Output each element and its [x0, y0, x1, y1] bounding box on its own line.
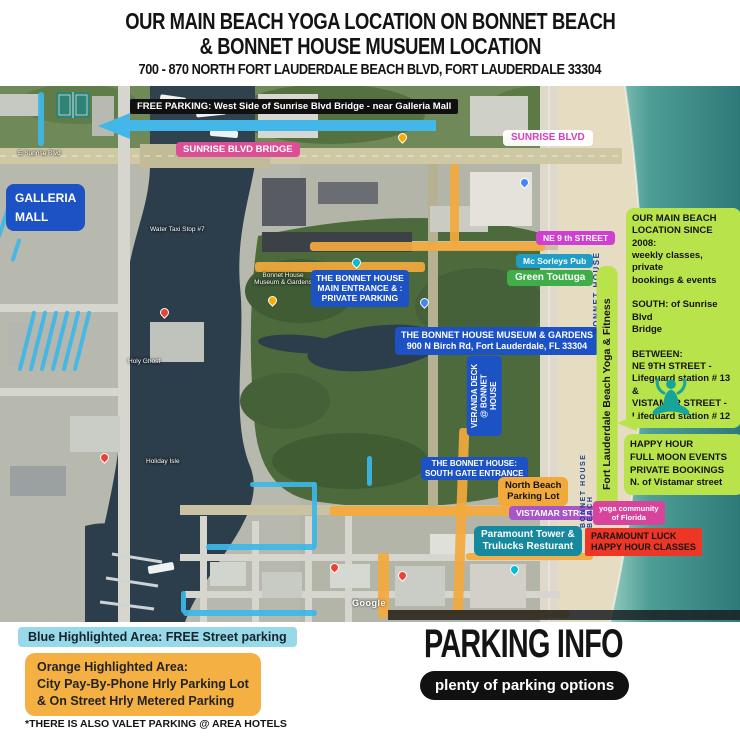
label-sunrise-blvd: SUNRISE BLVD: [503, 130, 593, 146]
blue-highlight-segment: [206, 544, 316, 550]
satellite-map: Water Taxi Stop #7 Holy Ghost Holiday Is…: [0, 86, 740, 622]
blue-highlight-segment: [183, 610, 317, 616]
page-title-line1: OUR MAIN BEACH YOGA LOCATION ON BONNET B…: [0, 8, 740, 35]
label-paramount-luck: PARAMOUNT LUCK HAPPY HOUR CLASSES: [585, 528, 702, 556]
page-title-line2: & BONNET HOUSE MUSUEM LOCATION: [0, 33, 740, 60]
label-galleria-mall: GALLERIA MALL: [6, 184, 85, 231]
label-veranda-deck: VERANDA DECK @ BONNET HOUSE: [467, 356, 502, 436]
label-bonnet-main-entrance: THE BONNET HOUSE MAIN ENTRANCE & : PRIVA…: [311, 270, 409, 307]
label-yoga-community: yoga community of Florida: [593, 501, 665, 525]
green-arrow-icon: [617, 414, 735, 432]
label-sunrise-blvd-bridge: SUNRISE BLVD BRIDGE: [176, 142, 300, 157]
label-mc-sorleys-pub: Mc Sorleys Pub: [516, 254, 593, 268]
label-yoga-strip: Fort Lauderdale Beach Yoga & Fitness: [597, 266, 618, 522]
blue-highlight-segment: [38, 92, 44, 146]
valet-parking-footnote: *THERE IS ALSO VALET PARKING @ AREA HOTE…: [25, 718, 287, 730]
parking-options-pill: plenty of parking options: [420, 671, 629, 700]
place-label-water-taxi: Water Taxi Stop #7: [150, 226, 205, 233]
place-label-bonnet-house-small: Bonnet House Museum & Gardens: [252, 272, 314, 286]
place-label-sunrise-road: E Sunrise Blvd: [18, 150, 61, 157]
legend-orange-highlight: Orange Highlighted Area: City Pay-By-Pho…: [25, 653, 261, 716]
blue-arrow-icon: [98, 112, 436, 140]
place-label-holy-ghost: Holy Ghost: [128, 358, 160, 365]
blue-highlight-segment: [312, 482, 317, 548]
legend-blue-highlight: Blue Highlighted Area: FREE Street parki…: [18, 627, 297, 647]
label-bonnet-house-beach-south: BONNET HOUSE BEACH: [580, 440, 594, 528]
map-attribution-bar: [388, 610, 740, 620]
parking-info-title: PARKING INFO: [424, 622, 700, 667]
happy-hour-info-box: HAPPY HOUR FULL MOON EVENTS PRIVATE BOOK…: [624, 434, 740, 495]
label-paramount-tower: Paramount Tower & Trulucks Resturant: [474, 526, 582, 556]
label-bonnet-museum-address: THE BONNET HOUSE MUSEUM & GARDENS 900 N …: [395, 327, 599, 355]
google-watermark: Google: [352, 598, 386, 608]
orange-highlight-segment: [450, 164, 459, 244]
page-subtitle-address: 700 - 870 NORTH FORT LAUDERDALE BEACH BL…: [0, 62, 740, 78]
flyer: OUR MAIN BEACH YOGA LOCATION ON BONNET B…: [0, 0, 740, 740]
label-green-toutuga: Green Toutuga: [507, 270, 593, 286]
blue-highlight-segment: [367, 456, 372, 486]
label-north-beach-lot: North Beach Parking Lot: [498, 477, 568, 506]
place-label-holiday-isle: Holiday Isle: [146, 458, 180, 465]
orange-highlight-segment: [310, 242, 545, 251]
orange-highlight-segment: [378, 553, 389, 618]
blue-highlight-segment: [250, 482, 316, 487]
